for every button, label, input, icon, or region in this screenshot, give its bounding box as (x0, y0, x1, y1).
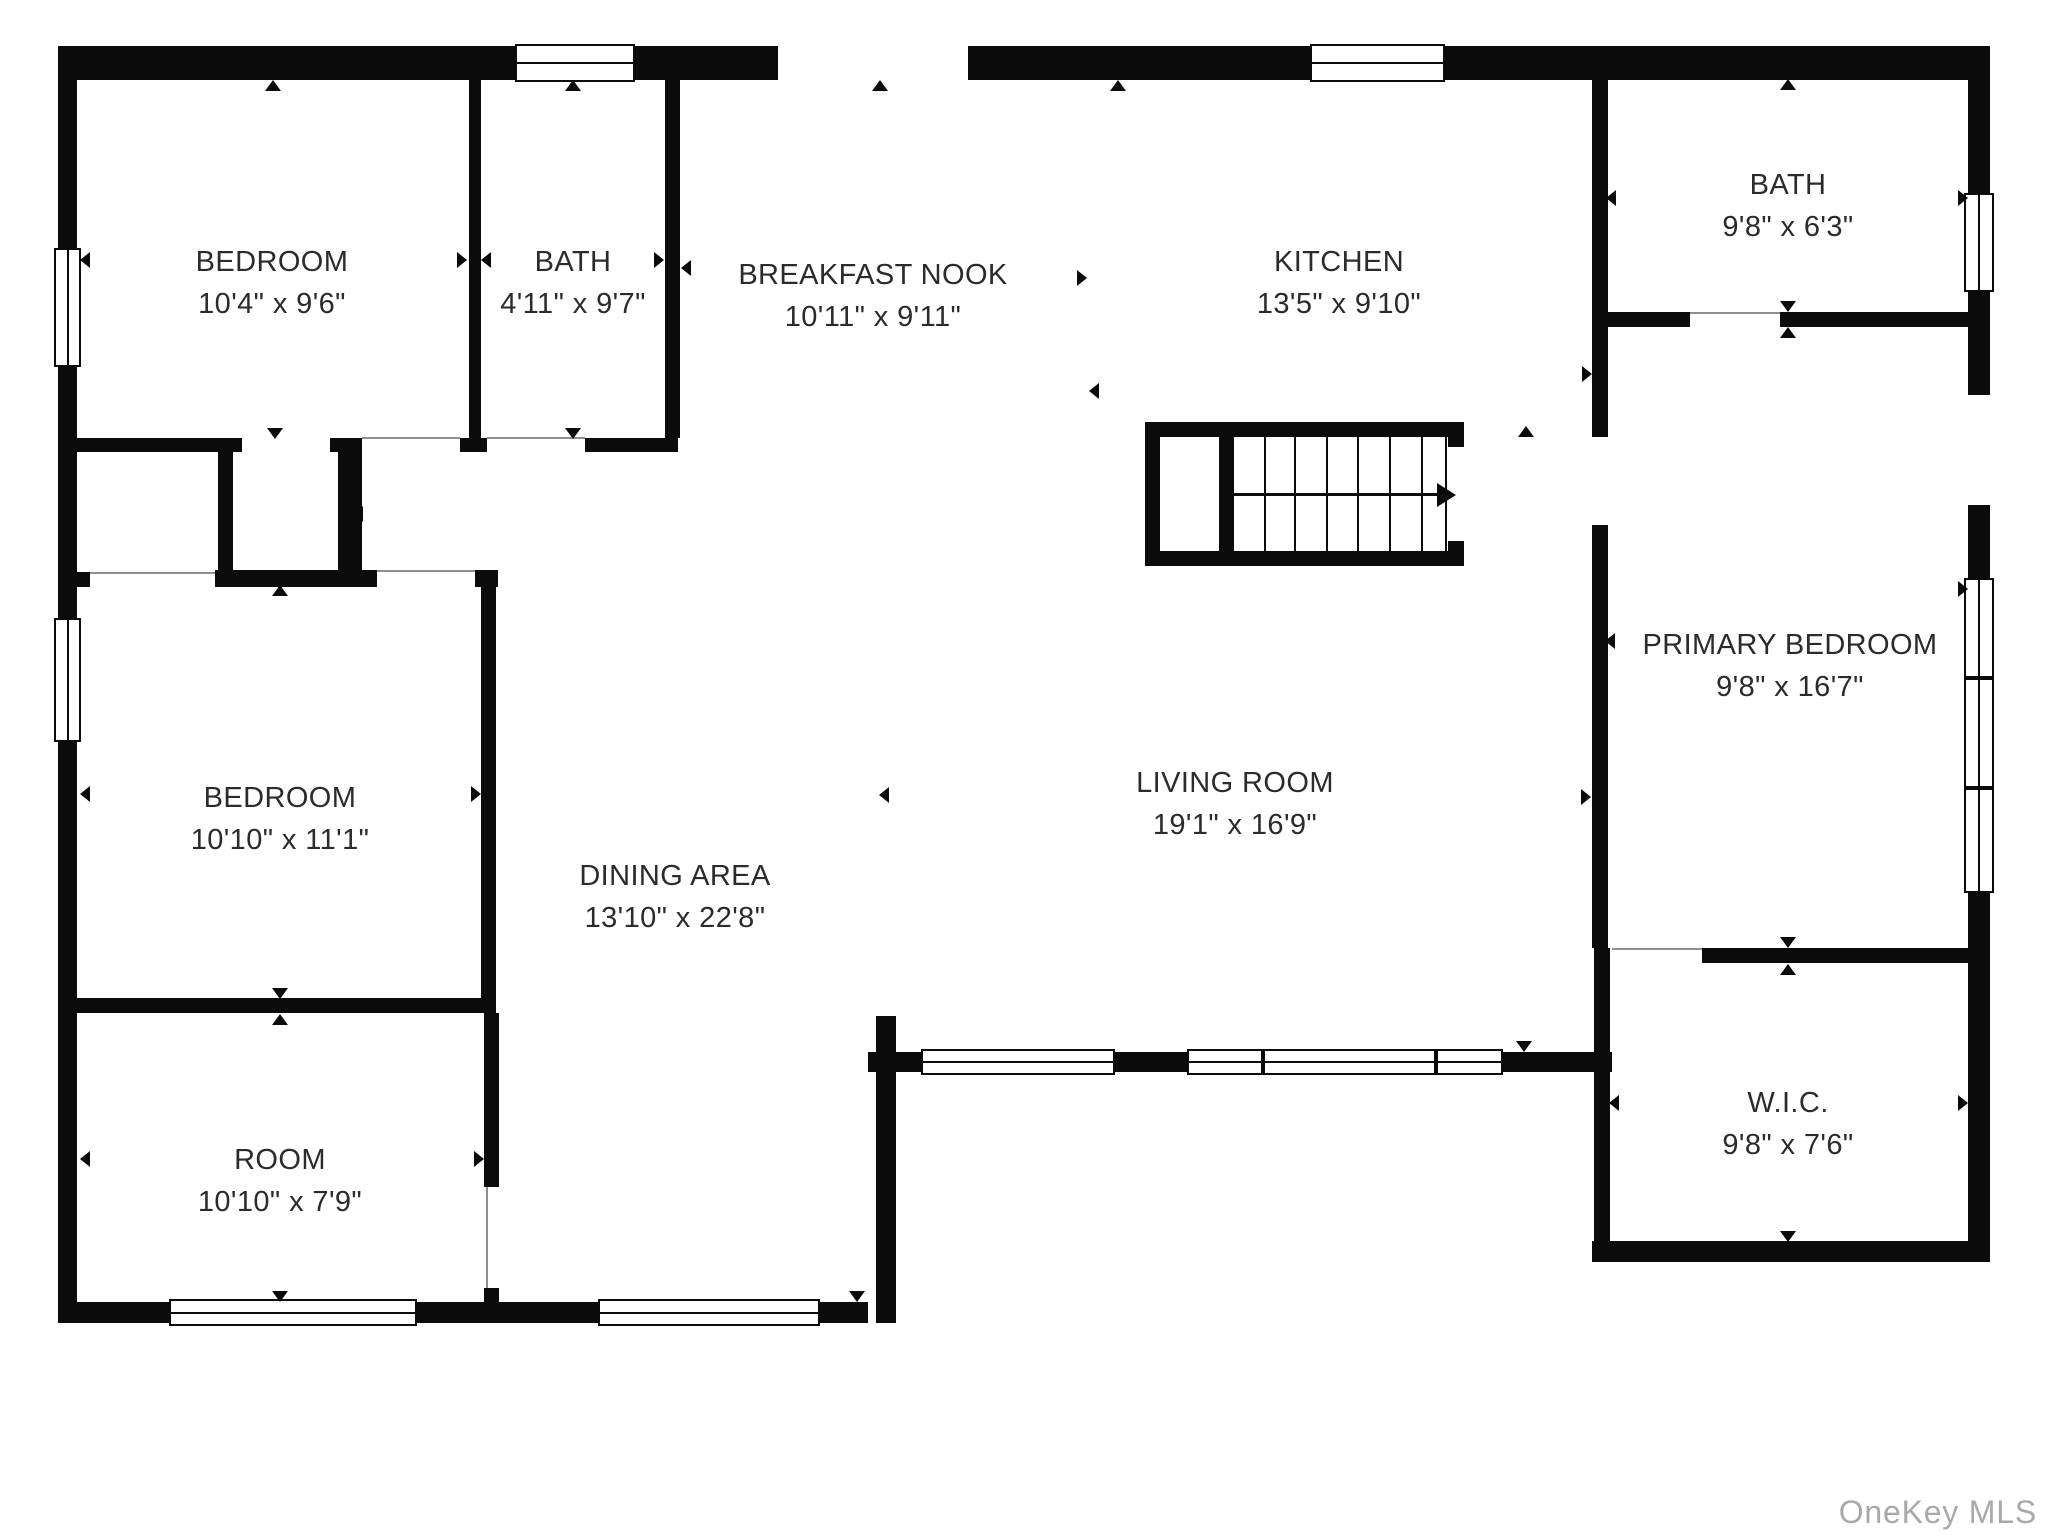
room-name: W.I.C. (1722, 1082, 1853, 1124)
room-name: BEDROOM (196, 241, 349, 283)
wall (58, 46, 515, 80)
floor-plan: BEDROOM 10'4" x 9'6" BATH 4'11" x 9'7" B… (0, 0, 2048, 1536)
opening-marker-up-icon (1780, 79, 1796, 90)
wall (215, 570, 377, 587)
room-label-bath-1: BATH 4'11" x 9'7" (500, 241, 646, 325)
wall (968, 46, 1310, 80)
window-pane-line (1978, 580, 1980, 676)
onekey-mls-watermark: OneKey MLS (1839, 1494, 2037, 1531)
wall (1968, 505, 1990, 578)
opening-marker-down-icon (1780, 937, 1796, 948)
room-dimensions: 19'1" x 16'9" (1136, 804, 1334, 846)
room-name: BATH (500, 241, 646, 283)
stair-wall (1448, 422, 1464, 447)
window-icon (598, 1299, 820, 1326)
opening-marker-up-icon (1780, 964, 1796, 975)
wall (1592, 80, 1608, 437)
wall (1594, 948, 1610, 1262)
window-icon (169, 1299, 417, 1326)
room-dimensions: 4'11" x 9'7" (500, 283, 646, 325)
opening-marker-right-icon (654, 252, 664, 268)
window-icon (1964, 578, 1994, 678)
wall (1968, 292, 1990, 395)
opening-marker-left-icon (681, 260, 691, 276)
window-pane-line (171, 1312, 415, 1314)
opening-marker-down-icon (1780, 301, 1796, 312)
wall (1702, 948, 1990, 963)
door-opening-line (1690, 312, 1780, 314)
opening-marker-right-icon (474, 1151, 484, 1167)
window-icon (1187, 1049, 1263, 1075)
room-dimensions: 9'8" x 7'6" (1722, 1124, 1853, 1166)
wall (1608, 312, 1690, 327)
room-name: LIVING ROOM (1136, 762, 1334, 804)
window-icon (515, 44, 635, 82)
wall (665, 80, 680, 438)
room-dimensions: 10'11" x 9'11" (738, 296, 1007, 338)
stair-wall (1145, 551, 1464, 566)
window-pane-line (67, 620, 69, 740)
window-pane-line (1265, 1061, 1434, 1063)
room-label-kitchen: KITCHEN 13'5" x 9'10" (1257, 241, 1421, 325)
opening-marker-left-icon (481, 252, 491, 268)
wall (1445, 46, 1990, 80)
opening-marker-left-icon (1089, 383, 1099, 399)
opening-marker-down-icon (272, 988, 288, 999)
room-name: PRIMARY BEDROOM (1643, 624, 1938, 666)
stair-wall (1219, 437, 1234, 551)
opening-marker-up-icon (1780, 327, 1796, 338)
opening-marker-up-icon (565, 80, 581, 91)
stair-direction-arrow-icon (1437, 483, 1456, 507)
room-dimensions: 9'8" x 16'7" (1643, 666, 1938, 708)
door-opening-line (1612, 948, 1702, 950)
opening-marker-left-icon (879, 787, 889, 803)
room-name: BREAKFAST NOOK (738, 254, 1007, 296)
opening-marker-up-icon (272, 1014, 288, 1025)
window-pane-line (67, 250, 69, 365)
wall (1115, 1052, 1187, 1072)
window-pane-line (1978, 680, 1980, 786)
window-pane-line (1438, 1061, 1501, 1063)
room-dimensions: 10'4" x 9'6" (196, 283, 349, 325)
wall (1968, 893, 1990, 1262)
wall (58, 742, 77, 1302)
opening-marker-down-icon (565, 428, 581, 439)
window-pane-line (923, 1061, 1113, 1063)
window-icon (54, 618, 81, 742)
window-pane-line (600, 1312, 818, 1314)
wall (58, 1302, 169, 1323)
room-label-wic: W.I.C. 9'8" x 7'6" (1722, 1082, 1853, 1166)
door-opening-line (90, 572, 215, 574)
wall (1968, 46, 1990, 193)
wall (868, 1052, 921, 1072)
room-dimensions: 10'10" x 11'1" (191, 819, 370, 861)
opening-marker-down-icon (272, 1291, 288, 1302)
opening-marker-right-icon (1958, 581, 1968, 597)
stair-wall (1145, 422, 1464, 437)
window-icon (1436, 1049, 1503, 1075)
room-name: BEDROOM (191, 777, 370, 819)
opening-marker-left-icon (1609, 1095, 1619, 1111)
room-label-living-room: LIVING ROOM 19'1" x 16'9" (1136, 762, 1334, 846)
opening-marker-up-icon (265, 80, 281, 91)
window-pane-line (1312, 62, 1443, 64)
room-name: DINING AREA (579, 855, 770, 897)
room-label-breakfast-nook: BREAKFAST NOOK 10'11" x 9'11" (738, 254, 1007, 338)
opening-marker-left-icon (1606, 190, 1616, 206)
opening-marker-up-icon (872, 80, 888, 91)
wall (58, 46, 77, 248)
window-icon (54, 248, 81, 367)
wall (218, 452, 233, 570)
room-name: KITCHEN (1257, 241, 1421, 283)
room-label-bedroom-2: BEDROOM 10'10" x 11'1" (191, 777, 370, 861)
wall (481, 587, 496, 998)
room-label-dining-area: DINING AREA 13'10" x 22'8" (579, 855, 770, 939)
opening-marker-up-icon (1110, 80, 1126, 91)
wall (1780, 312, 1968, 327)
wall (330, 438, 362, 452)
door-opening-line (486, 1187, 488, 1288)
door-opening-line (377, 570, 475, 572)
wall (469, 80, 481, 438)
window-pane-line (1978, 790, 1980, 891)
opening-marker-left-icon (80, 786, 90, 802)
wall (585, 438, 678, 452)
window-icon (921, 1049, 1115, 1075)
wall (820, 1302, 868, 1323)
opening-marker-right-icon (471, 786, 481, 802)
opening-marker-right-icon (1582, 366, 1592, 382)
room-label-room: ROOM 10'10" x 7'9" (198, 1139, 362, 1223)
wall (58, 998, 496, 1013)
wall (635, 46, 778, 80)
opening-marker-down-icon (849, 1291, 865, 1302)
opening-marker-up-icon (1518, 426, 1534, 437)
opening-marker-right-icon (1958, 190, 1968, 206)
wall (460, 438, 487, 452)
window-icon (1964, 193, 1994, 292)
opening-marker-up-icon (272, 585, 288, 596)
wall (1592, 1241, 1990, 1262)
opening-marker-left-icon (353, 506, 363, 522)
opening-marker-right-icon (1581, 789, 1591, 805)
window-pane-line (1978, 195, 1980, 290)
window-pane-line (1189, 1061, 1261, 1063)
stair-direction-line (1234, 493, 1439, 496)
wall (417, 1302, 598, 1323)
opening-marker-left-icon (80, 1151, 90, 1167)
room-dimensions: 13'10" x 22'8" (579, 897, 770, 939)
room-dimensions: 13'5" x 9'10" (1257, 283, 1421, 325)
room-dimensions: 10'10" x 7'9" (198, 1181, 362, 1223)
opening-marker-left-icon (1605, 633, 1615, 649)
stair-wall (1145, 422, 1160, 566)
opening-marker-down-icon (1780, 1231, 1796, 1242)
room-label-bath-2: BATH 9'8" x 6'3" (1722, 164, 1853, 248)
room-label-bedroom-1: BEDROOM 10'4" x 9'6" (196, 241, 349, 325)
opening-marker-left-icon (80, 252, 90, 268)
opening-marker-right-icon (457, 252, 467, 268)
opening-marker-right-icon (1958, 1095, 1968, 1111)
wall (58, 572, 90, 587)
wall (475, 570, 498, 587)
opening-marker-right-icon (1077, 270, 1087, 286)
wall (484, 1013, 499, 1187)
opening-marker-down-icon (267, 428, 283, 439)
stair-wall (1448, 541, 1464, 566)
room-name: ROOM (198, 1139, 362, 1181)
wall (484, 1288, 499, 1323)
room-label-primary-bedroom: PRIMARY BEDROOM 9'8" x 16'7" (1643, 624, 1938, 708)
window-icon (1310, 44, 1445, 82)
window-pane-line (517, 62, 633, 64)
wall (1592, 525, 1608, 948)
door-opening-line (362, 437, 460, 439)
window-icon (1964, 678, 1994, 788)
room-name: BATH (1722, 164, 1853, 206)
window-icon (1263, 1049, 1436, 1075)
opening-marker-down-icon (1516, 1041, 1532, 1052)
wall (77, 438, 242, 452)
window-icon (1964, 788, 1994, 893)
room-dimensions: 9'8" x 6'3" (1722, 206, 1853, 248)
